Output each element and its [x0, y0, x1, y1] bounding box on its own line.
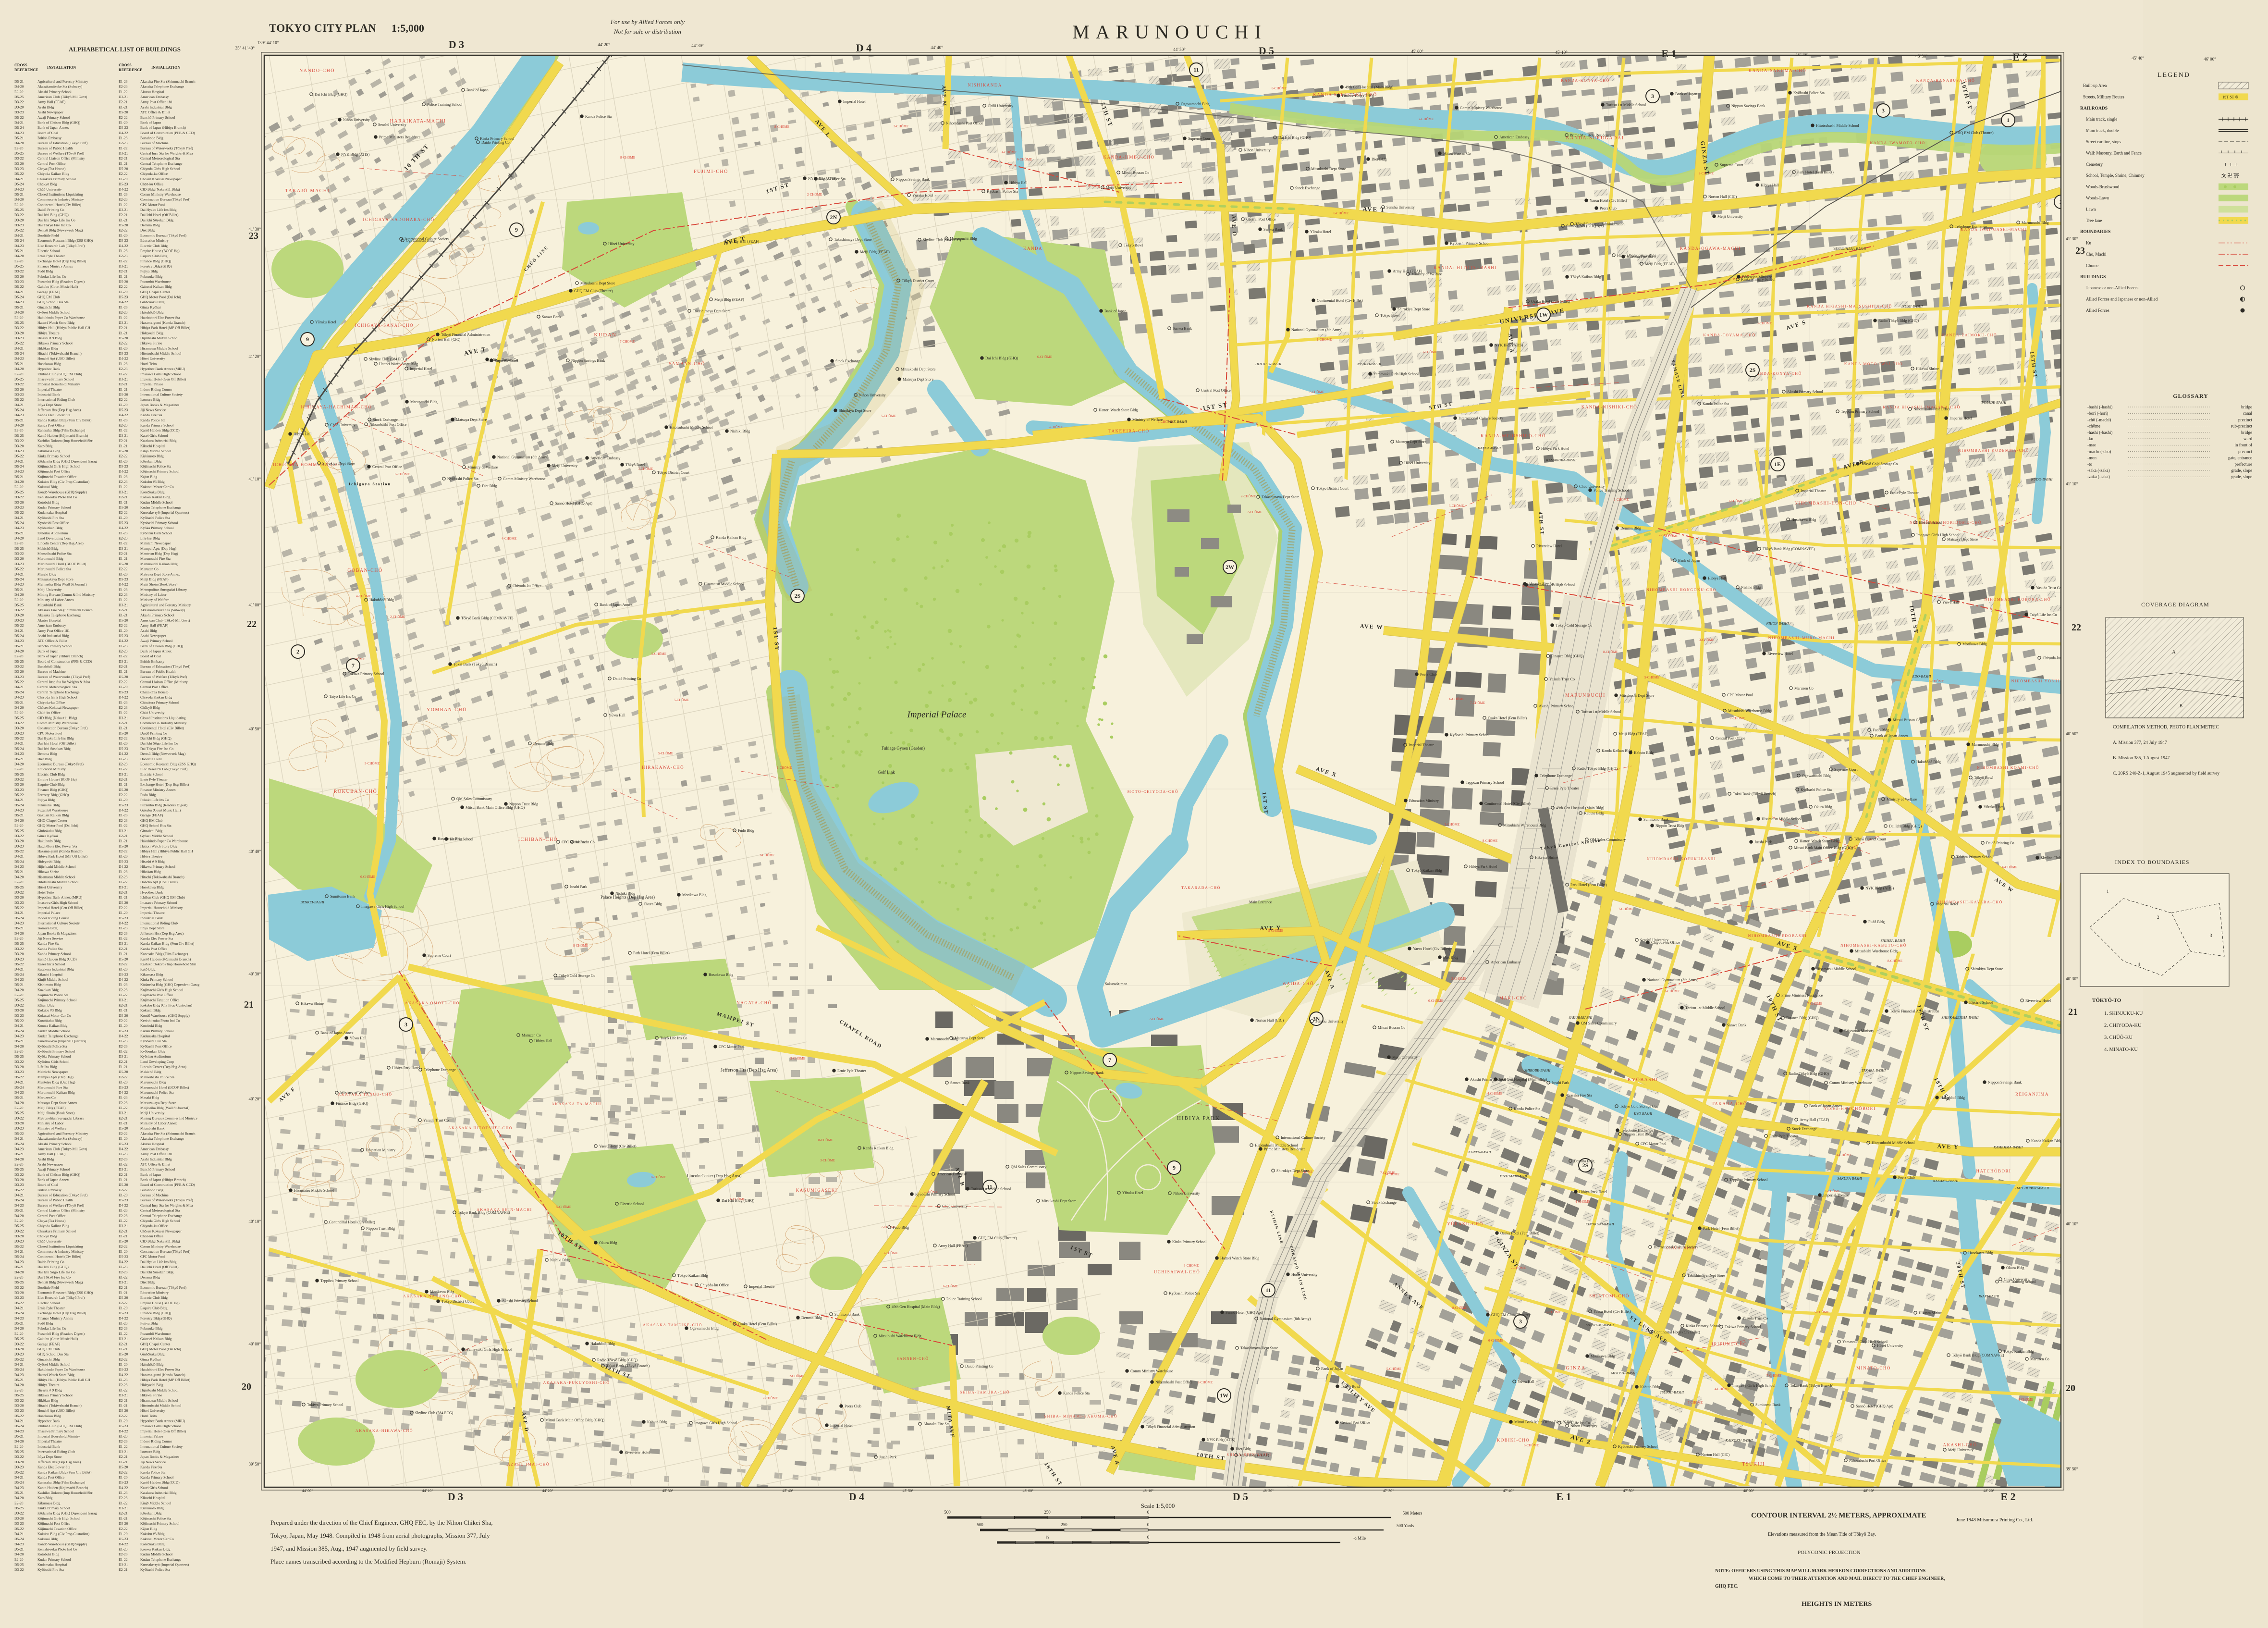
svg-text:IRIFUNE-CHŌ: IRIFUNE-CHŌ — [1712, 1342, 1747, 1346]
svg-text:Nishiki Bldg: Nishiki Bldg — [730, 429, 750, 433]
svg-text:Okura Bldg: Okura Bldg — [1814, 805, 1832, 809]
svg-text:Chiyoda-ku Office: Chiyoda-ku Office — [700, 1283, 729, 1287]
svg-text:C: C — [2146, 687, 2149, 692]
svg-text:Jusshi Park: Jusshi Park — [570, 885, 587, 889]
svg-text:EDO-BASHI: EDO-BASHI — [1912, 674, 1931, 678]
svg-text:MIYOSHI-BASHI: MIYOSHI-BASHI — [1610, 1371, 1637, 1375]
svg-text:D5-24Akashi Primary School: D5-24Akashi Primary School — [14, 1142, 72, 1146]
svg-text:D3-23Kikumasa Bldg: D3-23Kikumasa Bldg — [14, 449, 61, 453]
svg-text:E1-20Imperial Theatre: E1-20Imperial Theatre — [119, 911, 165, 915]
svg-text:1W: 1W — [1539, 311, 1548, 318]
svg-text:Chūō University: Chūō University — [988, 104, 1013, 108]
svg-text:Hattori Watch Store Bldg: Hattori Watch Store Bldg — [1220, 1256, 1259, 1260]
svg-text:E2-23Matsuzakaya Dept Store: E2-23Matsuzakaya Dept Store — [119, 1100, 176, 1105]
svg-text:KUDAN: KUDAN — [594, 332, 616, 338]
svg-text:E1-20Bank of Japan: E1-20Bank of Japan — [119, 120, 161, 124]
svg-text:Hattori Watch Store Bldg: Hattori Watch Store Bldg — [1099, 408, 1138, 412]
svg-text:2S: 2S — [1750, 367, 1756, 373]
svg-text:Taiyō Life Ins Co: Taiyō Life Ins Co — [660, 1036, 687, 1040]
svg-text:D5-20Kanda Fire Sta: D5-20Kanda Fire Sta — [119, 1465, 162, 1469]
svg-text:E1-21Kudan Middle School: E1-21Kudan Middle School — [119, 500, 172, 505]
svg-text:E2-22Bunahōdō Bldg: E2-22Bunahōdō Bldg — [119, 1188, 163, 1192]
svg-text:Army Hall (FEAF): Army Hall (FEAF) — [1393, 269, 1422, 273]
svg-text:D4-22Forestry Bldg (GHQ): D4-22Forestry Bldg (GHQ) — [119, 1316, 172, 1320]
svg-text:1-CHŌME: 1-CHŌME — [1825, 1189, 1840, 1193]
svg-text:Nippon Savings Bank: Nippon Savings Bank — [896, 177, 930, 182]
svg-text:D3-21Kōjimachi Taxation Office: D3-21Kōjimachi Taxation Office — [119, 998, 180, 1002]
svg-text:LEGEND: LEGEND — [2158, 72, 2190, 79]
svg-text:Sanwa Bank: Sanwa Bank — [950, 1081, 969, 1085]
svg-text:23: 23 — [249, 231, 258, 241]
svg-text:1-CHŌME: 1-CHŌME — [777, 766, 792, 770]
svg-text:GHQ EM Club (Theatre): GHQ EM Club (Theatre) — [1955, 131, 1994, 135]
svg-text:49th Gen Hospital (Main Bldg): 49th Gen Hospital (Main Bldg) — [1345, 85, 1394, 89]
svg-text:-to: -to — [2087, 462, 2092, 467]
svg-text:D4-23ATC Office & Billet: D4-23ATC Office & Billet — [14, 639, 68, 643]
svg-text:9: 9 — [515, 226, 518, 233]
svg-text:Nihon University: Nihon University — [859, 393, 886, 397]
svg-text:E2-20Kudan Primary School: E2-20Kudan Primary School — [14, 1557, 71, 1562]
svg-text:E2-23Esquire Club Bldg: E2-23Esquire Club Bldg — [119, 254, 168, 258]
svg-text:Kabuto Bldg: Kabuto Bldg — [1634, 751, 1654, 755]
svg-text:Teppōzu Primary School: Teppōzu Primary School — [1729, 1178, 1768, 1182]
svg-text:Tōkyō Financial Administration: Tōkyō Financial Administration — [1890, 1009, 1939, 1013]
svg-text:Kyōbashi Primary School: Kyōbashi Primary School — [1618, 1444, 1658, 1449]
svg-text:AVE W: AVE W — [1360, 623, 1384, 631]
svg-text:Bank of Japan Annex: Bank of Japan Annex — [1875, 734, 1908, 738]
svg-text:Allied Forces and Japanese or: Allied Forces and Japanese or non-Allied — [2086, 297, 2158, 302]
svg-text:8-CHŌME: 8-CHŌME — [1483, 839, 1497, 843]
svg-text:-chō (-machi): -chō (-machi) — [2087, 417, 2111, 422]
svg-text:NIHOMBASHI-HON-CHŌ: NIHOMBASHI-HON-CHŌ — [1795, 501, 1857, 506]
svg-text:Yūraku Hotel: Yūraku Hotel — [1122, 1191, 1144, 1195]
svg-text:1-CHŌME: 1-CHŌME — [1317, 338, 1332, 342]
svg-text:MARUNOUCHI: MARUNOUCHI — [1072, 21, 1267, 43]
svg-text:D5-23Kikumasa Bldg: D5-23Kikumasa Bldg — [119, 972, 163, 976]
svg-text:Army Hall (FEAF): Army Hall (FEAF) — [730, 239, 760, 244]
svg-text:11: 11 — [1193, 66, 1199, 73]
svg-text:Not for sale or distribution: Not for sale or distribution — [613, 28, 681, 35]
svg-text:Sanwa Bank: Sanwa Bank — [542, 315, 561, 319]
svg-text:E2-22Gakusei Kaikan Bldg: E2-22Gakusei Kaikan Bldg — [119, 284, 172, 289]
svg-text:Telephone Exchange: Telephone Exchange — [1955, 224, 1987, 229]
svg-text:Continental Hotel (Civ Billet): Continental Hotel (Civ Billet) — [1317, 298, 1363, 303]
svg-text:KAMAKURA-BASHI: KAMAKURA-BASHI — [1545, 458, 1577, 462]
svg-text:QM Sales Commissary: QM Sales Commissary — [1011, 1165, 1046, 1169]
svg-text:D4-20Ernie Pyle Theater: D4-20Ernie Pyle Theater — [14, 254, 65, 258]
svg-text:E2-22Kanda Police Sta: E2-22Kanda Police Sta — [119, 1470, 166, 1474]
svg-text:Stock Exchange: Stock Exchange — [1295, 186, 1320, 190]
svg-text:RAILROADS: RAILROADS — [2080, 106, 2108, 111]
svg-text:Hisamatsu Middle School: Hisamatsu Middle School — [1816, 967, 1857, 971]
svg-text:D5-20Ginhōkaku Bldg: D5-20Ginhōkaku Bldg — [119, 1352, 165, 1357]
svg-text:Ernie Pyle Theater: Ernie Pyle Theater — [837, 1069, 866, 1073]
svg-text:D4-21Dai Ichi Hotel (Off Bille: D4-21Dai Ichi Hotel (Off Billet) — [14, 741, 76, 746]
svg-text:E1-22Kyōbunkan Bldg: E1-22Kyōbunkan Bldg — [119, 1049, 165, 1054]
svg-text:D5-23Hatchōbori Elec Power Sta: D5-23Hatchōbori Elec Power Sta — [119, 1368, 180, 1372]
svg-text:MINATO-CHŌ: MINATO-CHŌ — [1856, 1366, 1891, 1370]
svg-text:D5-25Meiji Shoin (Book Store): D5-25Meiji Shoin (Book Store) — [14, 1111, 75, 1115]
svg-text:D5-25Electric Club Bldg: D5-25Electric Club Bldg — [14, 772, 65, 777]
svg-text:D5-22Hikawa Primary School: D5-22Hikawa Primary School — [14, 341, 73, 345]
svg-text:Imperial Hotel: Imperial Hotel — [843, 99, 866, 104]
svg-text:500: 500 — [977, 1522, 983, 1527]
svg-text:7-CHŌME: 7-CHŌME — [1546, 1310, 1561, 1314]
svg-text:Mitsukoshi Dept Store: Mitsukoshi Dept Store — [1042, 1199, 1077, 1203]
svg-text:Meiji Bldg (FEAF): Meiji Bldg (FEAF) — [1239, 1453, 1269, 1457]
svg-text:E2-22Dai Ichi Bldg (GHQ): E2-22Dai Ichi Bldg (GHQ) — [119, 736, 172, 740]
svg-text:6-CHŌME: 6-CHŌME — [1449, 697, 1464, 701]
svg-text:Hibiya Hall: Hibiya Hall — [1708, 576, 1726, 580]
svg-text:HATCHOBORI-BASHI: HATCHOBORI-BASHI — [2015, 1186, 2049, 1190]
svg-text:HITOTSU-BASHI: HITOTSU-BASHI — [1255, 362, 1282, 366]
svg-text:D4-21Hypothec Bank: D4-21Hypothec Bank — [14, 1419, 61, 1423]
svg-text:D5-22Awaji Primary School: D5-22Awaji Primary School — [14, 115, 70, 120]
svg-text:National Gymnasium (8th Army): National Gymnasium (8th Army) — [1291, 328, 1343, 332]
svg-text:40' 10°: 40' 10° — [249, 1219, 261, 1224]
svg-text:B. Mission 385, 1 August 194: B. Mission 385, 1 August 1947 — [2113, 756, 2170, 761]
svg-text:Prime Ministers Residence: Prime Ministers Residence — [379, 135, 421, 139]
svg-text:D3-20Esquire Club Bldg: D3-20Esquire Club Bldg — [14, 782, 65, 787]
svg-text:D5-24Kyōbashi Post Office: D5-24Kyōbashi Post Office — [14, 521, 69, 525]
svg-text:D3-22Garage (FEAF): D3-22Garage (FEAF) — [14, 1342, 61, 1346]
svg-text:Imperial Theatre: Imperial Theatre — [1801, 489, 1827, 493]
svg-text:Nihon University: Nihon University — [1173, 1191, 1200, 1196]
svg-text:D 4: D 4 — [849, 1491, 864, 1503]
svg-text:Morikawa Bldg: Morikawa Bldg — [1962, 642, 1986, 646]
svg-text:Education Ministry: Education Ministry — [1844, 1029, 1874, 1033]
svg-text:Tōkyō Financial Administration: Tōkyō Financial Administration — [1146, 1425, 1195, 1429]
svg-text:Police Training School: Police Training School — [946, 1297, 982, 1301]
svg-text:Bank of Japan: Bank of Japan — [1678, 558, 1700, 563]
svg-text:D3-22Kanda Police Sta: D3-22Kanda Police Sta — [14, 947, 63, 951]
svg-text:D3-23CPC Motor Pool: D3-23CPC Motor Pool — [14, 731, 62, 735]
svg-text:E1-20Esquire Club Bldg: E1-20Esquire Club Bldg — [119, 1306, 168, 1310]
svg-text:Yamawaki Girls High School: Yamawaki Girls High School — [1530, 583, 1575, 587]
svg-text:B: B — [2180, 703, 2182, 708]
svg-text:D3-21Hosokawa Bldg: D3-21Hosokawa Bldg — [119, 885, 164, 889]
svg-text:D3-22Dai Ichi Bldg (GHQ): D3-22Dai Ichi Bldg (GHQ) — [14, 213, 69, 217]
svg-text:D3-22Manseibashi Police Sta: D3-22Manseibashi Police Sta — [14, 552, 72, 556]
svg-text:E1-22CPC Motor Pool: E1-22CPC Motor Pool — [119, 202, 165, 207]
svg-text:National Gymnasium (8th Army): National Gymnasium (8th Army) — [1647, 978, 1699, 982]
svg-text:E2-21Army Post Office 181: E2-21Army Post Office 181 — [119, 100, 172, 104]
svg-text:Mitsukoshi Dept Store: Mitsukoshi Dept Store — [580, 281, 615, 285]
svg-text:KYŌ-BASHI: KYŌ-BASHI — [1633, 1111, 1652, 1116]
svg-text:文 卍 ⛩: 文 卍 ⛩ — [2221, 173, 2240, 179]
svg-text:4-CHŌME: 4-CHŌME — [1715, 1387, 1729, 1391]
svg-text:ICHIGAYA-SANAI-CHŌ: ICHIGAYA-SANAI-CHŌ — [355, 323, 414, 328]
svg-text:CPC Motor Pool: CPC Motor Pool — [1727, 693, 1753, 697]
svg-text:COVERAGE DIAGRAM: COVERAGE DIAGRAM — [2141, 601, 2209, 608]
svg-text:2: 2 — [296, 648, 299, 655]
svg-text:CPC Motor Pool: CPC Motor Pool — [719, 1045, 745, 1049]
svg-text:Yaesu Hotel (Civ Billet): Yaesu Hotel (Civ Billet) — [1594, 1309, 1631, 1314]
svg-text:Demma Bldg: Demma Bldg — [1620, 526, 1641, 530]
svg-text:Kanda Kaikan Bldg: Kanda Kaikan Bldg — [716, 535, 747, 540]
svg-text:40' 30°: 40' 30° — [249, 972, 261, 976]
svg-text:Taiyō Life Ins Co: Taiyō Life Ins Co — [2030, 613, 2057, 617]
svg-text:D3-23Kōjimachi Post Office: D3-23Kōjimachi Post Office — [14, 1521, 71, 1526]
svg-text:D5-23Kantō Haiden Bldg (CCD): D5-23Kantō Haiden Bldg (CCD) — [119, 1480, 180, 1485]
svg-text:D5-24Hideyoshi Bldg: D5-24Hideyoshi Bldg — [14, 859, 61, 863]
svg-text:YOMBAN-CHŌ: YOMBAN-CHŌ — [427, 707, 467, 713]
svg-text:E2-20Hisashi # 9 Bldg: E2-20Hisashi # 9 Bldg — [14, 1388, 62, 1392]
svg-text:E2-21Kōzokan Bldg: E2-21Kōzokan Bldg — [119, 1511, 161, 1516]
svg-text:D4-21Imperial Palace: D4-21Imperial Palace — [14, 911, 61, 915]
svg-text:Takashimaya Dept Store: Takashimaya Dept Store — [1687, 1273, 1725, 1278]
svg-text:Imperial Hotel: Imperial Hotel — [830, 1423, 853, 1428]
svg-text:1: 1 — [2007, 117, 2010, 123]
svg-text:Imperial Theatre: Imperial Theatre — [749, 1284, 775, 1289]
svg-text:TOKYO CITY PLAN: TOKYO CITY PLAN — [269, 22, 376, 34]
svg-text:1ST ST ③: 1ST ST ③ — [2222, 95, 2239, 99]
svg-text:D4-22American Embassy: D4-22American Embassy — [119, 1147, 169, 1151]
svg-text:E1-20Kyōbashi Police Sta: E1-20Kyōbashi Police Sta — [119, 516, 170, 520]
svg-text:D3-23Honchō Apt (USO Billet): D3-23Honchō Apt (USO Billet) — [14, 1408, 75, 1413]
svg-text:D5-22Dai Hyaku Life Ins Bldg: D5-22Dai Hyaku Life Ins Bldg — [14, 736, 74, 740]
svg-text:E1-20Bureau of Machine: E1-20Bureau of Machine — [119, 1193, 169, 1197]
svg-text:TAKARA-BASHI: TAKARA-BASHI — [1862, 1068, 1886, 1073]
svg-text:40' 00°: 40' 00° — [249, 1342, 261, 1346]
svg-text:Central Post Office: Central Post Office — [1201, 388, 1231, 393]
svg-text:D5-25Mitsubishi Bank: D5-25Mitsubishi Bank — [14, 603, 62, 607]
svg-text:D5-22Kinka Primary School: D5-22Kinka Primary School — [14, 454, 70, 458]
svg-text:Takashimaya Dept Store: Takashimaya Dept Store — [1262, 495, 1300, 499]
svg-text:D 4: D 4 — [856, 42, 871, 54]
svg-text:Tōkyō District Court: Tōkyō District Court — [1316, 486, 1349, 491]
svg-text:3-CHŌME: 3-CHŌME — [1184, 1264, 1199, 1268]
svg-text:7-CHŌME: 7-CHŌME — [1807, 1002, 1822, 1006]
svg-text:prefecture: prefecture — [2235, 462, 2252, 467]
svg-text:Ministry of Welfare: Ministry of Welfare — [340, 1091, 371, 1095]
svg-text:Hibiya Park Hotel: Hibiya Park Hotel — [1541, 446, 1569, 451]
svg-text:2. CHIYODA-KU: 2. CHIYODA-KU — [2104, 1023, 2142, 1028]
svg-text:D5-23Asahi Newspaper: D5-23Asahi Newspaper — [119, 633, 166, 638]
svg-text:-mae: -mae — [2087, 443, 2096, 447]
svg-text:TAKE-BASHI: TAKE-BASHI — [1167, 419, 1187, 424]
svg-text:21: 21 — [244, 999, 254, 1010]
svg-text:D5-25Hikawa Primary School: D5-25Hikawa Primary School — [14, 1393, 73, 1397]
svg-text:D5-24Matsuzakaya Dept Store: D5-24Matsuzakaya Dept Store — [14, 577, 74, 581]
svg-text:Finance Bldg (GHQ): Finance Bldg (GHQ) — [1551, 654, 1584, 658]
svg-text:Tokiwa Primary School: Tokiwa Primary School — [1956, 855, 1993, 859]
svg-text:MOTO-CHIYODA-CHŌ: MOTO-CHIYODA-CHŌ — [1128, 789, 1179, 794]
svg-text:D4-21Konwa Kaikan Bldg: D4-21Konwa Kaikan Bldg — [14, 1024, 68, 1028]
svg-text:KAIKOKU-BASHI: KAIKOKU-BASHI — [1725, 1438, 1753, 1443]
svg-text:Akasaka Fire Sta: Akasaka Fire Sta — [1627, 255, 1653, 259]
svg-text:TSUKIJI-BASHI: TSUKIJI-BASHI — [1660, 1390, 1684, 1394]
svg-text:Meiji Bldg (FEAF): Meiji Bldg (FEAF) — [714, 297, 744, 302]
svg-text:Tōkyō Financial Administration: Tōkyō Financial Administration — [441, 333, 490, 337]
svg-text:D5-23Akutsu Hospital: D5-23Akutsu Hospital — [119, 1142, 164, 1146]
svg-text:Imagawa Girls High School: Imagawa Girls High School — [694, 1421, 737, 1425]
svg-text:E1-20Kanda Primary School: E1-20Kanda Primary School — [119, 1475, 173, 1480]
svg-text:D3-21Electric School: D3-21Electric School — [119, 772, 163, 777]
svg-text:SAMBAN-CHŌ: SAMBAN-CHŌ — [669, 361, 705, 366]
svg-text:GLOSSARY: GLOSSARY — [2173, 393, 2208, 399]
svg-text:D3-21Forestry Bldg (GHQ): D3-21Forestry Bldg (GHQ) — [119, 264, 172, 269]
svg-text:E1-22Chūō University: E1-22Chūō University — [119, 711, 165, 715]
svg-text:Okura Bldg: Okura Bldg — [644, 902, 662, 906]
svg-text:Park Hotel (Fem Billet): Park Hotel (Fem Billet) — [633, 951, 670, 955]
svg-text:Ogawamachi Bldg: Ogawamachi Bldg — [690, 1326, 719, 1331]
svg-text:D3-21Gakusei Kaikan Bldg: D3-21Gakusei Kaikan Bldg — [119, 1337, 172, 1341]
svg-text:6-CHŌME: 6-CHŌME — [2002, 865, 2017, 869]
svg-text:ROKUBAN-CHŌ: ROKUBAN-CHŌ — [334, 789, 377, 794]
svg-text:E 2: E 2 — [2012, 51, 2027, 63]
svg-text:Meiji University: Meiji University — [1717, 214, 1743, 219]
svg-text:3: 3 — [405, 1021, 407, 1028]
svg-text:D4-22Ginhōkaku Bldg: D4-22Ginhōkaku Bldg — [119, 300, 165, 304]
svg-text:Meiji Bldg (FEAF): Meiji Bldg (FEAF) — [860, 250, 890, 254]
svg-text:Nippon Trust Bldg: Nippon Trust Bldg — [366, 1226, 395, 1231]
svg-text:Yamawaki Girls High School: Yamawaki Girls High School — [466, 1347, 512, 1352]
svg-text:Ministry of Welfare: Ministry of Welfare — [1132, 418, 1163, 422]
svg-text:Bank of Japan Annex: Bank of Japan Annex — [600, 603, 633, 607]
svg-text:D4-22Kōjimachi Primary School: D4-22Kōjimachi Primary School — [119, 469, 179, 474]
svg-text:D3-20Marunouchi Bldg: D3-20Marunouchi Bldg — [14, 556, 63, 561]
svg-text:NYK Bldg (ATIS): NYK Bldg (ATIS) — [341, 152, 369, 157]
svg-text:Chūō University: Chūō University — [330, 423, 356, 427]
svg-text:Supreme Court: Supreme Court — [1720, 163, 1743, 167]
svg-text:D5-23Education Ministry: D5-23Education Ministry — [119, 238, 169, 243]
svg-text:D4-22Kyōka Primary School: D4-22Kyōka Primary School — [119, 526, 174, 530]
svg-text:⊥ ⊥ ⊥: ⊥ ⊥ ⊥ — [2223, 162, 2238, 168]
svg-text:KASUMIGASEKI: KASUMIGASEKI — [796, 1188, 838, 1193]
svg-text:HATCHŌBORI: HATCHŌBORI — [1976, 1169, 2011, 1173]
svg-text:D4-20Kyōbashi Police Sta: D4-20Kyōbashi Police Sta — [14, 1044, 67, 1048]
svg-text:6-CHŌME: 6-CHŌME — [1272, 86, 1287, 90]
svg-text:Nippon Savings Bank: Nippon Savings Bank — [1070, 1071, 1103, 1075]
svg-text:D3-21American Embassy: D3-21American Embassy — [119, 95, 169, 99]
svg-text:Stock Exchange: Stock Exchange — [373, 418, 398, 422]
svg-text:D5-20Fuzambō Warehouse: D5-20Fuzambō Warehouse — [119, 280, 171, 284]
svg-text:Diet Bldg: Diet Bldg — [1236, 1447, 1250, 1451]
svg-text:E2-23Indoor Riding Course: E2-23Indoor Riding Course — [119, 1439, 172, 1443]
svg-text:precinct: precinct — [2238, 417, 2252, 422]
svg-text:E1-21Chūō-ku Office: E1-21Chūō-ku Office — [119, 1234, 163, 1238]
svg-text:Jefferson Hts (Dep Hsg Area): Jefferson Hts (Dep Hsg Area) — [721, 1068, 778, 1073]
svg-text:NISHIKI-BASHI: NISHIKI-BASHI — [1357, 362, 1381, 366]
svg-text:8-CHŌME: 8-CHŌME — [774, 125, 789, 129]
svg-text:D4-23Finance Ministry Annex: D4-23Finance Ministry Annex — [14, 1316, 73, 1320]
svg-text:BOUNDARIES: BOUNDARIES — [2080, 230, 2110, 234]
svg-text:Nihon University: Nihon University — [1244, 148, 1271, 152]
svg-text:Yūraku Hotel: Yūraku Hotel — [1310, 230, 1332, 234]
svg-text:Shirokiya Dept Store: Shirokiya Dept Store — [1971, 967, 2003, 971]
svg-text:E1-21Education Ministry: E1-21Education Ministry — [119, 1291, 169, 1295]
svg-text:D3-20GHQ EM Club: D3-20GHQ EM Club — [14, 1347, 60, 1351]
svg-text:D4-22Kasei Girls School: D4-22Kasei Girls School — [119, 1485, 168, 1490]
svg-text:D5-24Marunouchi Fire Sta: D5-24Marunouchi Fire Sta — [14, 1085, 68, 1089]
svg-text:D3-23Kanda Elec Power Sta: D3-23Kanda Elec Power Sta — [14, 1465, 71, 1469]
svg-text:E1-22Board of Coal: E1-22Board of Coal — [119, 654, 161, 658]
svg-text:46' 00°: 46' 00° — [1023, 1489, 1034, 1493]
svg-text:AKASAKA OMOTE-CHŌ: AKASAKA OMOTE-CHŌ — [405, 1001, 460, 1005]
svg-text:in front of: in front of — [2235, 443, 2253, 447]
svg-text:Peers Club: Peers Club — [1898, 1175, 1915, 1180]
svg-text:3: 3 — [1651, 93, 1654, 99]
svg-text:FUJIMI-CHŌ: FUJIMI-CHŌ — [694, 169, 728, 174]
svg-text:Sannō Hotel (GHQ Apt): Sannō Hotel (GHQ Apt) — [555, 501, 592, 506]
svg-text:Ernie Pyle Theater: Ernie Pyle Theater — [1890, 491, 1919, 495]
svg-text:7: 7 — [352, 662, 355, 669]
svg-text:D3-23Ministry of Welfare: D3-23Ministry of Welfare — [14, 1126, 67, 1131]
svg-text:NIHOMBASHI-EDOBASHI: NIHOMBASHI-EDOBASHI — [1748, 934, 1807, 938]
svg-text:3: 3 — [1519, 1318, 1522, 1325]
svg-text:1:5,000: 1:5,000 — [392, 22, 424, 34]
svg-text:Fukiage Gyoen (Garden): Fukiage Gyoen (Garden) — [882, 746, 925, 751]
svg-text:D5-20Kōjimachi Primary School: D5-20Kōjimachi Primary School — [119, 1521, 179, 1526]
svg-text:D5-25Kyōka Primary School: D5-25Kyōka Primary School — [14, 1054, 71, 1059]
svg-text:D3-22Kyōbashi Fire Sta: D3-22Kyōbashi Fire Sta — [14, 1567, 64, 1572]
svg-text:-machi (-chō): -machi (-chō) — [2087, 449, 2111, 454]
svg-text:D5-24Kudan Middle School: D5-24Kudan Middle School — [14, 1029, 70, 1033]
svg-text:AZABU IMAI-CHŌ: AZABU IMAI-CHŌ — [507, 1462, 550, 1467]
svg-text:Toritsu 1st Middle School: Toritsu 1st Middle School — [1685, 1006, 1726, 1010]
svg-text:International Culture Society: International Culture Society — [1281, 1135, 1325, 1140]
svg-text:Mitsubishi Warehouse Bldg: Mitsubishi Warehouse Bldg — [1728, 709, 1771, 713]
svg-text:Hōsei University: Hōsei University — [1877, 1344, 1903, 1348]
svg-text:Tōkyō Kaikan Bldg: Tōkyō Kaikan Bldg — [2003, 1349, 2034, 1354]
svg-text:D4-22Dai Hyaku Life Ins Bldg: D4-22Dai Hyaku Life Ins Bldg — [119, 1259, 177, 1264]
svg-text:D4-21Chisakura Primary School: D4-21Chisakura Primary School — [14, 177, 76, 181]
svg-text:D3-20Hibiya Theatre: D3-20Hibiya Theatre — [14, 331, 60, 335]
svg-text:D3-21Meiji University: D3-21Meiji University — [119, 1111, 165, 1115]
svg-text:Prime Ministers Residence: Prime Ministers Residence — [1264, 1147, 1306, 1151]
svg-text:E2-23Hideyoshi Bldg: E2-23Hideyoshi Bldg — [119, 1383, 163, 1387]
svg-text:KANDA-IWAMOTO-CHŌ: KANDA-IWAMOTO-CHŌ — [1870, 141, 1925, 145]
svg-text:Woods-Brushwood: Woods-Brushwood — [2086, 185, 2120, 189]
svg-text:7-CHŌME: 7-CHŌME — [1247, 510, 1262, 514]
svg-text:AVE Y: AVE Y — [1937, 1143, 1959, 1150]
svg-text:American Embassy: American Embassy — [937, 1172, 967, 1176]
svg-text:D5-23Finance Bldg (GHQ): D5-23Finance Bldg (GHQ) — [119, 1311, 172, 1315]
svg-text:D3-22Army Hall (FEAF): D3-22Army Hall (FEAF) — [14, 100, 66, 104]
svg-text:Tokai Bank (Tōkyō Branch): Tokai Bank (Tōkyō Branch) — [1733, 792, 1777, 796]
svg-text:20: 20 — [2066, 1383, 2075, 1394]
svg-text:E2-21Hypothec Bank: E2-21Hypothec Bank — [119, 890, 163, 894]
svg-text:Kinka Primary School: Kinka Primary School — [1686, 1324, 1720, 1328]
svg-text:4. MINATO-KU: 4. MINATO-KU — [2104, 1047, 2138, 1052]
svg-text:½: ½ — [1046, 1535, 1049, 1540]
svg-text:Kabuto Bldg: Kabuto Bldg — [647, 1420, 667, 1424]
svg-text:E2-20Chūō-ku Office: E2-20Chūō-ku Office — [14, 711, 61, 715]
svg-text:CROSS: CROSS — [119, 63, 132, 67]
svg-text:2-CHŌME: 2-CHŌME — [1198, 1381, 1213, 1384]
svg-text:E2-22Kishimoto Bldg: E2-22Kishimoto Bldg — [119, 454, 164, 458]
svg-text:E2-23Kyōbashi Post Office: E2-23Kyōbashi Post Office — [119, 1044, 172, 1048]
svg-text:D5-22International Riding Club: D5-22International Riding Club — [14, 397, 75, 402]
svg-text:Hibiya Park Hotel: Hibiya Park Hotel — [1469, 864, 1497, 869]
svg-text:22: 22 — [247, 619, 257, 629]
svg-text:Nippon Savings Bank: Nippon Savings Bank — [571, 358, 605, 363]
svg-text:E1-21Hideyoshi Bldg: E1-21Hideyoshi Bldg — [119, 331, 163, 335]
svg-text:E2-23Hakuhōdō Bldg: E2-23Hakuhōdō Bldg — [119, 310, 164, 315]
svg-text:48' 20°: 48' 20° — [1984, 1489, 1995, 1493]
svg-text:Hosokawa Bldg: Hosokawa Bldg — [709, 973, 733, 977]
svg-text:E1-22Akutsu Hospital: E1-22Akutsu Hospital — [119, 89, 164, 94]
svg-text:D4-22Electric Club Bldg: D4-22Electric Club Bldg — [119, 244, 168, 248]
svg-text:Okura Bldg: Okura Bldg — [599, 1241, 617, 1245]
svg-text:Tōkyō Cold Storage Co: Tōkyō Cold Storage Co — [1861, 462, 1898, 466]
svg-text:Meiji Bldg (FEAF): Meiji Bldg (FEAF) — [1618, 732, 1648, 736]
svg-text:Peers Club: Peers Club — [1600, 206, 1617, 210]
svg-text:C. 20RS 240-Z-1, August 1945: C. 20RS 240-Z-1, August 1945 augmented b… — [2113, 771, 2219, 776]
svg-text:Matsuya Dept Store: Matsuya Dept Store — [456, 418, 487, 422]
svg-text:3. CHŪŌ-KU: 3. CHŪŌ-KU — [2104, 1035, 2133, 1040]
